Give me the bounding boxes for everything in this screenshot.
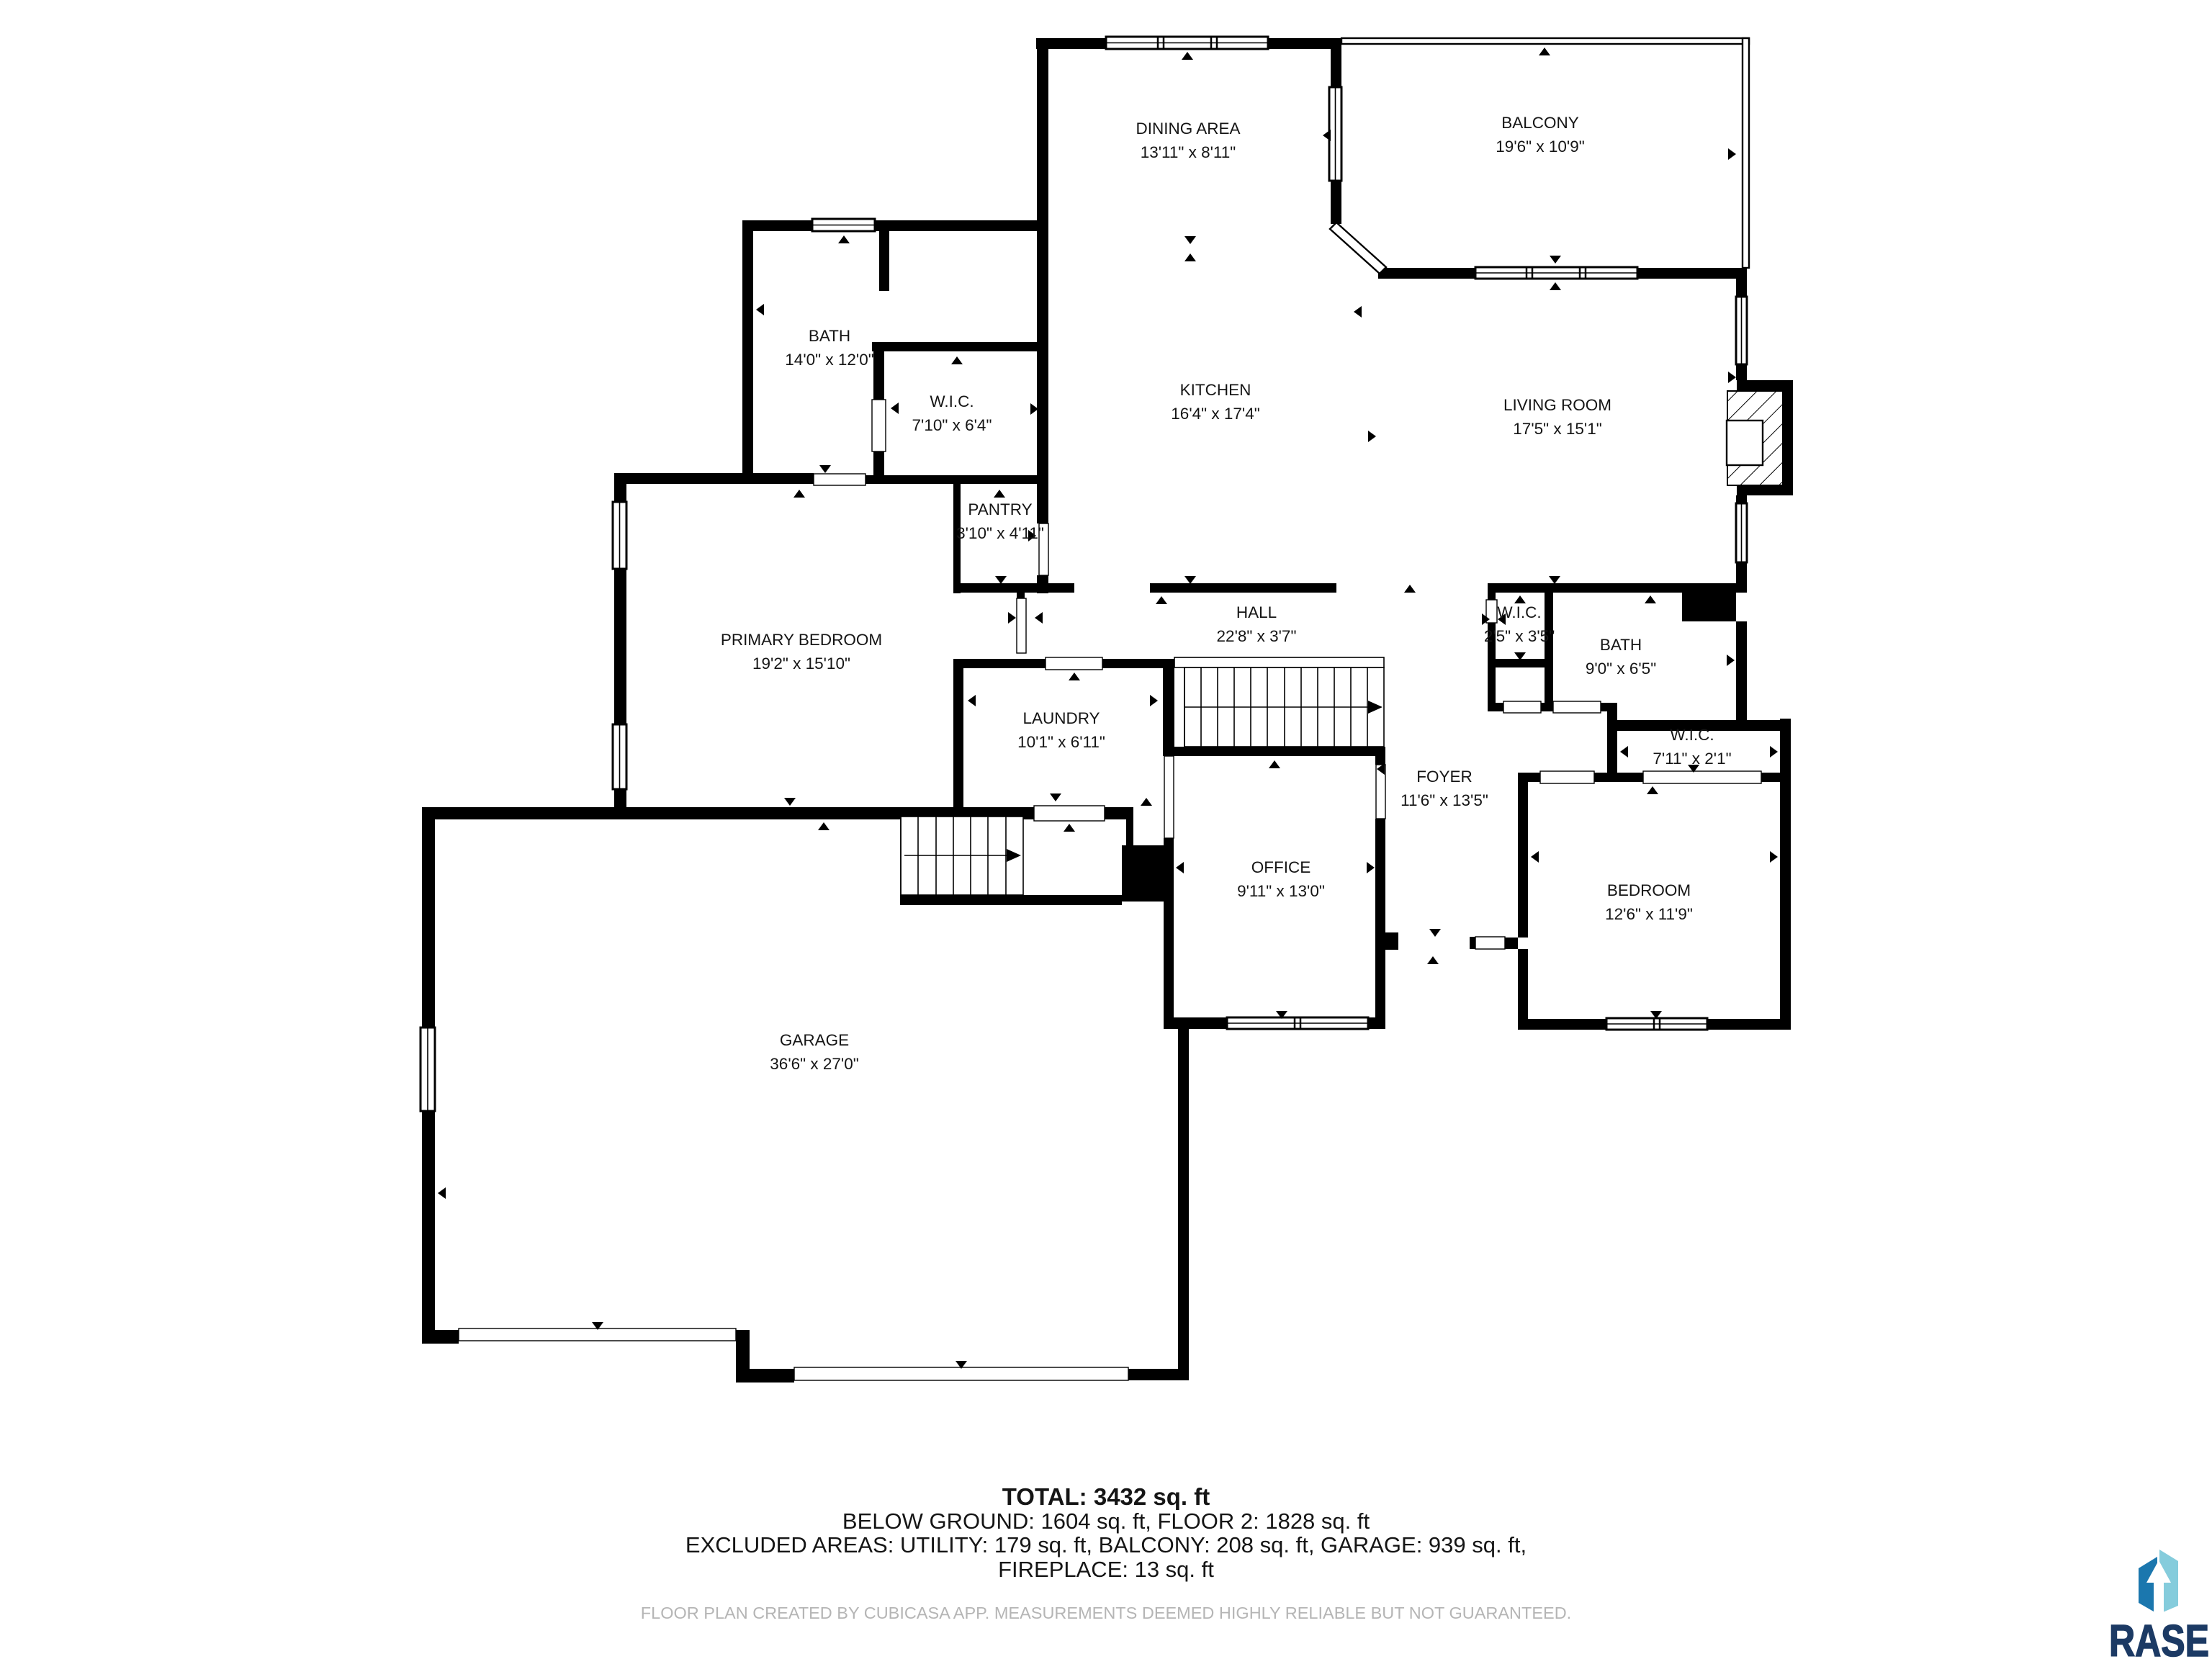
svg-text:FIREPLACE: 13 sq. ft: FIREPLACE: 13 sq. ft <box>998 1557 1214 1582</box>
svg-text:FOYER: FOYER <box>1416 768 1473 786</box>
svg-text:2'5" x 3'5": 2'5" x 3'5" <box>1484 627 1555 645</box>
svg-text:BALCONY: BALCONY <box>1501 114 1579 132</box>
svg-text:BATH: BATH <box>809 327 850 345</box>
svg-text:22'8" x 3'7": 22'8" x 3'7" <box>1217 627 1297 645</box>
svg-text:EXCLUDED AREAS: UTILITY: 179 s: EXCLUDED AREAS: UTILITY: 179 sq. ft, BAL… <box>685 1532 1527 1557</box>
svg-text:BATH: BATH <box>1600 636 1642 654</box>
svg-text:10'1" x 6'11": 10'1" x 6'11" <box>1017 733 1105 751</box>
svg-text:BEDROOM: BEDROOM <box>1607 881 1691 899</box>
svg-text:TOTAL: 3432 sq. ft: TOTAL: 3432 sq. ft <box>1002 1483 1210 1510</box>
svg-text:W.I.C.: W.I.C. <box>930 392 974 410</box>
svg-text:LIVING ROOM: LIVING ROOM <box>1503 396 1611 414</box>
svg-text:KITCHEN: KITCHEN <box>1180 381 1251 399</box>
svg-text:9'11" x 13'0": 9'11" x 13'0" <box>1237 882 1325 900</box>
svg-text:36'6" x 27'0": 36'6" x 27'0" <box>770 1055 858 1073</box>
svg-text:W.I.C.: W.I.C. <box>1497 603 1541 621</box>
svg-text:HALL: HALL <box>1236 603 1277 621</box>
svg-text:RASE: RASE <box>2109 1617 2209 1659</box>
svg-text:PANTRY: PANTRY <box>968 500 1032 518</box>
svg-text:W.I.C.: W.I.C. <box>1670 726 1714 744</box>
svg-text:LAUNDRY: LAUNDRY <box>1022 709 1100 727</box>
svg-text:GARAGE: GARAGE <box>780 1031 849 1049</box>
svg-text:OFFICE: OFFICE <box>1251 858 1311 876</box>
svg-text:17'5" x 15'1": 17'5" x 15'1" <box>1513 420 1601 438</box>
svg-text:19'6" x 10'9": 19'6" x 10'9" <box>1496 138 1584 156</box>
svg-text:14'0" x 12'0": 14'0" x 12'0" <box>785 351 873 369</box>
svg-text:11'6" x 13'5": 11'6" x 13'5" <box>1401 791 1488 809</box>
svg-text:9'0" x 6'5": 9'0" x 6'5" <box>1586 660 1656 678</box>
svg-text:7'10" x 6'4": 7'10" x 6'4" <box>912 416 992 434</box>
svg-text:7'11" x 2'1": 7'11" x 2'1" <box>1653 750 1731 768</box>
svg-text:13'11" x 8'11": 13'11" x 8'11" <box>1141 143 1236 161</box>
svg-text:BELOW GROUND: 1604 sq. ft, FLO: BELOW GROUND: 1604 sq. ft, FLOOR 2: 1828… <box>842 1509 1370 1534</box>
svg-text:12'6" x 11'9": 12'6" x 11'9" <box>1605 905 1693 923</box>
svg-text:FLOOR PLAN CREATED BY CUBICASA: FLOOR PLAN CREATED BY CUBICASA APP. MEAS… <box>641 1604 1571 1622</box>
svg-text:19'2" x 15'10": 19'2" x 15'10" <box>752 655 850 673</box>
svg-text:3'10" x 4'11": 3'10" x 4'11" <box>956 524 1044 542</box>
svg-text:PRIMARY BEDROOM: PRIMARY BEDROOM <box>721 631 882 649</box>
svg-text:DINING AREA: DINING AREA <box>1136 120 1240 138</box>
svg-text:16'4" x 17'4": 16'4" x 17'4" <box>1171 405 1259 423</box>
